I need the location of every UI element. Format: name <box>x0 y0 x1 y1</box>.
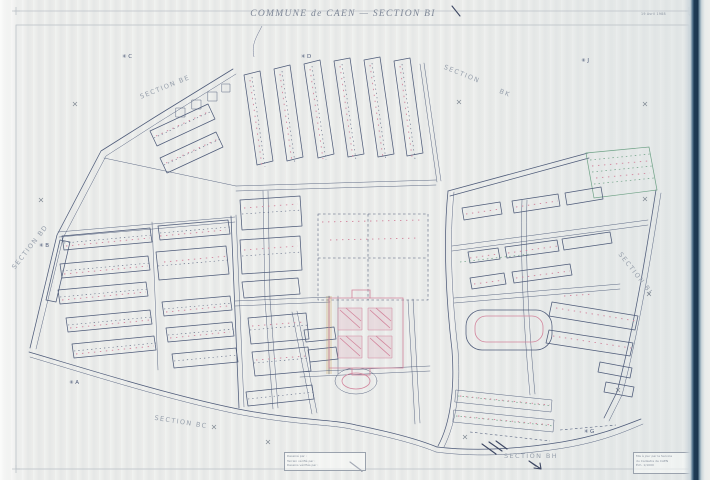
survey-star-mark: ✳ B <box>39 243 49 249</box>
stamp-line: Éch. 1/1000 <box>636 463 666 465</box>
section-label: SECTION BH <box>504 452 558 460</box>
grid-cross: × <box>38 196 45 205</box>
grid-cross: × <box>615 386 622 395</box>
survey-star-mark: ✳ A <box>69 380 79 386</box>
sheet-title: COMMUNE de CAEN — SECTION BI <box>0 9 686 19</box>
grid-cross: × <box>211 423 218 432</box>
legend-line: Dessiné par : <box>287 454 325 456</box>
grid-cross: × <box>642 100 649 109</box>
grid-cross: × <box>642 195 649 204</box>
map-annotations: SECTION BESECTIONBKSECTION BDSECTION BLS… <box>0 0 710 480</box>
survey-star-mark: ✳ J <box>581 58 589 64</box>
survey-star-mark: ✳ G <box>584 429 595 435</box>
section-label: SECTION BE <box>139 73 191 100</box>
survey-star-mark: ✳ D <box>301 54 312 60</box>
stamp-line: Mis à jour par le Service <box>636 454 666 456</box>
revision-date: 19 Avril 1988 <box>641 12 666 16</box>
scan-edge-left <box>0 0 8 480</box>
grid-cross: × <box>456 98 463 107</box>
section-label: SECTION BC <box>154 414 208 430</box>
grid-cross: × <box>646 290 653 299</box>
scan-edge-right <box>684 0 710 480</box>
legend-line: Terrain vérifié par : <box>287 459 325 461</box>
cadastral-sheet: SECTION BESECTIONBKSECTION BDSECTION BLS… <box>0 0 710 480</box>
section-label: SECTION <box>443 63 482 85</box>
section-label: BK <box>498 87 512 99</box>
stamp-line: du Cadastre de CAEN <box>636 459 666 461</box>
grid-cross: × <box>72 100 79 109</box>
legend-box: Dessiné par : Terrain vérifié par : Dess… <box>284 452 366 471</box>
legend-line: Dessins vérifiés par : <box>287 463 325 465</box>
survey-star-mark: ✳ C <box>122 54 132 60</box>
grid-cross: × <box>462 433 469 442</box>
grid-cross: × <box>265 438 272 447</box>
